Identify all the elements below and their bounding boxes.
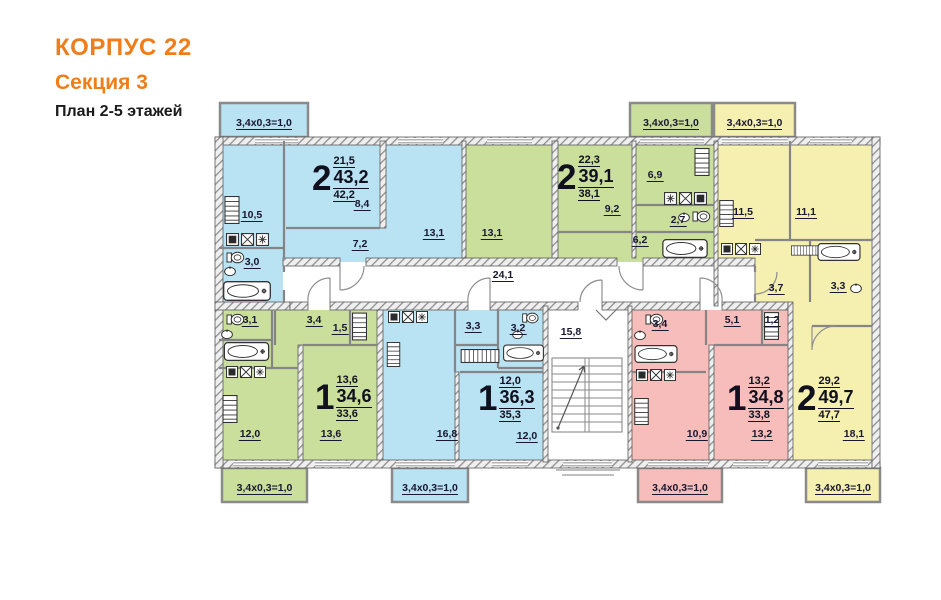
area-no-balcony: 42,2 [333,189,354,202]
kitchen-sink-icon [403,312,414,323]
bathtub-icon [224,282,271,301]
stove-icon [389,312,400,323]
room-area-label: 5,1 [724,314,741,327]
area-no-balcony: 38,1 [578,188,599,201]
fridge-icon [635,399,649,425]
toilet-icon [693,211,710,222]
corridor-area-label: 24,1 [492,269,514,282]
room-area-label: 9,2 [604,203,621,216]
apartment-summary-top-left: 2 21,5 43,2 42,2 [312,155,369,202]
burner-icon [257,234,269,246]
burner-icon [665,193,677,205]
kitchen-sink-icon [736,244,747,255]
total-area: 34,6 [336,387,371,408]
room-area-label: 3,0 [244,256,261,269]
balcony-label: 3,4x0,3=1,0 [220,113,308,131]
burner-icon [750,244,761,255]
area-no-balcony: 35,3 [499,409,520,422]
bathtub-icon [663,240,707,258]
rooms-count: 1 [315,382,334,414]
room-area-label: 16,8 [436,428,458,441]
stove-icon [722,244,733,255]
room-area-label: 13,2 [751,428,773,441]
room-area-label: 2,7 [670,214,687,227]
total-area: 39,1 [578,167,613,188]
room-area-label: 1,2 [764,314,781,327]
rooms-count: 2 [797,383,816,415]
balcony-label: 3,4x0,3=1,0 [806,478,880,496]
burner-icon [255,367,266,378]
balcony-label: 3,4x0,3=1,0 [222,478,307,496]
fridge-icon [225,197,239,224]
fridge-icon [695,149,709,176]
toilet-icon [227,252,244,263]
kitchen-sink-icon [241,367,252,378]
burner-icon [417,312,428,323]
rooms-count: 2 [312,163,331,195]
room-area-label: 3,1 [242,314,259,327]
bathtub-icon [224,343,268,361]
balcony-label: 3,4x0,3=1,0 [638,478,722,496]
area-no-balcony: 33,6 [336,408,357,421]
room-area-label: 10,5 [241,209,263,222]
rooms-count: 1 [478,383,497,415]
room-area-label: 10,9 [686,428,708,441]
rooms-count: 1 [727,383,746,415]
room-area-label: 3,4 [306,314,323,327]
room-area-label: 18,1 [843,428,865,441]
balcony-label: 3,4x0,3=1,0 [392,478,468,496]
bathtub-icon [504,345,544,361]
area-no-balcony: 33,8 [748,409,769,422]
balcony-dimensions: 3,4x0,3=1,0 [727,117,783,130]
room-area-label: 11,1 [795,206,817,219]
fridge-icon [223,396,237,423]
total-area: 49,7 [818,388,853,409]
stairwell-area-label: 15,8 [560,326,582,339]
total-area: 43,2 [333,168,368,189]
room-area-label: 8,4 [354,198,371,211]
balcony-dimensions: 3,4x0,3=1,0 [402,482,458,495]
room-area-label: 3,2 [510,322,527,335]
apartment-summary-bottom-right: 1 13,2 34,8 33,8 [727,375,784,422]
stove-icon [637,370,648,381]
balcony-label: 3,4x0,3=1,0 [714,113,795,131]
kitchen-sink-icon [680,193,692,205]
balcony-dimensions: 3,4x0,3=1,0 [236,117,292,130]
total-area: 34,8 [748,388,783,409]
total-area: 36,3 [499,388,534,409]
room-area-label: 3,3 [830,280,847,293]
entrance-threshold [556,470,620,475]
balcony-dimensions: 3,4x0,3=1,0 [237,482,293,495]
balcony-dimensions: 3,4x0,3=1,0 [652,482,708,495]
balcony-dimensions: 3,4x0,3=1,0 [643,117,699,130]
apartment-summary-top-middle: 2 22,3 39,1 38,1 [557,154,614,201]
closet-icon [353,313,367,340]
bathtub-icon [635,346,677,363]
room-area-label: 3,3 [465,320,482,333]
floor-plan-page: КОРПУС 22 Секция 3 План 2-5 этажей 3,4x0… [0,0,941,600]
fridge-icon [387,342,400,366]
bathtub-icon [818,244,860,261]
area-no-balcony: 47,7 [818,409,839,422]
room-area-label: 1,5 [332,322,349,335]
apartment-summary-bottom-middle: 1 12,0 36,3 35,3 [478,375,535,422]
room-area-label: 11,5 [732,206,754,219]
room-area-label: 12,0 [516,430,538,443]
room-area-label: 6,2 [632,234,649,247]
building-title: КОРПУС 22 [55,34,192,62]
room-area-label: 3,7 [768,282,785,295]
kitchen-sink-icon [651,370,662,381]
apartment-summary-right: 2 29,2 49,7 47,7 [797,375,854,422]
room-area-label: 12,0 [239,428,261,441]
room-area-label: 7,2 [352,238,369,251]
balcony-label: 3,4x0,3=1,0 [630,113,712,131]
stove-icon [227,234,239,246]
apartment-summary-bottom-left: 1 13,6 34,6 33,6 [315,374,372,421]
wardrobe-icon [791,246,818,255]
stove-icon [695,193,707,205]
plan-subtitle: План 2-5 этажей [55,103,182,121]
room-area-label: 13,1 [481,227,503,240]
rooms-count: 2 [557,162,576,194]
stove-icon [227,367,238,378]
burner-icon [665,370,676,381]
room-area-label: 3,4 [652,318,669,331]
wardrobe-icon [461,350,499,363]
balcony-dimensions: 3,4x0,3=1,0 [815,482,871,495]
section-title: Секция 3 [55,71,148,95]
room-area-label: 6,9 [647,169,664,182]
room-area-label: 13,1 [423,227,445,240]
room-area-label: 13,6 [320,428,342,441]
kitchen-sink-icon [242,234,254,246]
